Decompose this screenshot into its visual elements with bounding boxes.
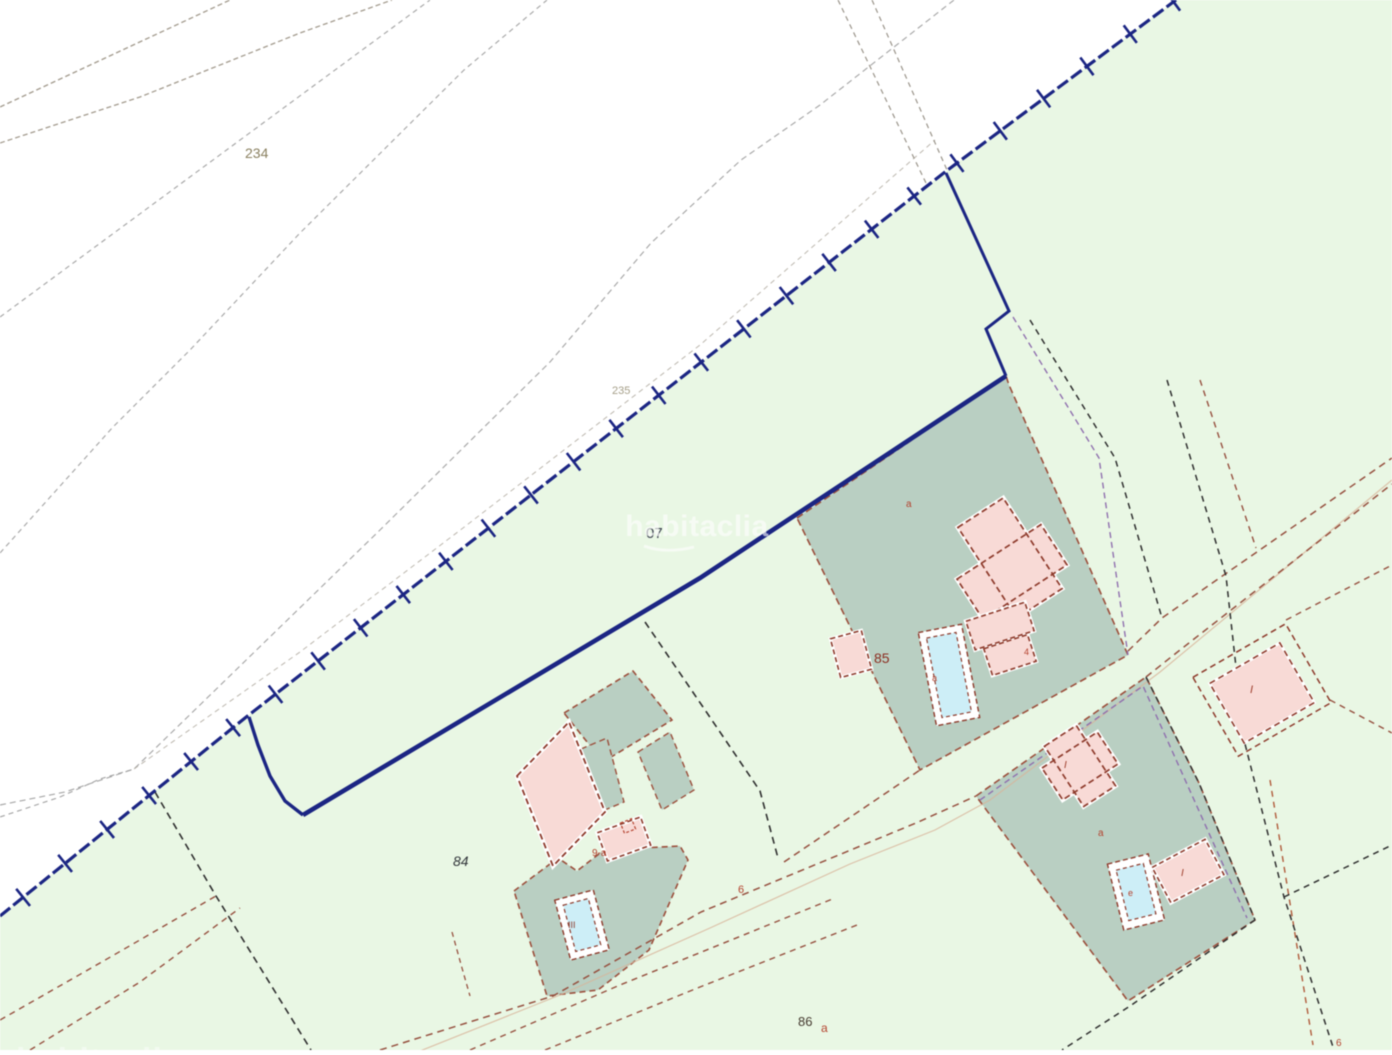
svg-text:I: I xyxy=(1064,760,1067,771)
svg-text:85: 85 xyxy=(874,650,890,666)
svg-text:a: a xyxy=(821,1021,828,1035)
svg-text:a: a xyxy=(932,673,937,683)
svg-text:a: a xyxy=(906,499,912,510)
svg-text:86: 86 xyxy=(798,1014,812,1029)
svg-text:e: e xyxy=(1128,888,1133,898)
svg-text:84: 84 xyxy=(453,853,469,869)
svg-text:6: 6 xyxy=(1336,1038,1342,1049)
svg-text:234: 234 xyxy=(245,145,269,161)
svg-text:III: III xyxy=(568,920,576,930)
svg-text:9-a: 9-a xyxy=(592,848,607,859)
svg-text:habitaclia: habitaclia xyxy=(16,1042,183,1050)
svg-text:a: a xyxy=(1098,828,1104,839)
svg-text:I: I xyxy=(1250,684,1253,696)
svg-text:235: 235 xyxy=(612,385,630,397)
svg-text:6: 6 xyxy=(738,884,744,896)
svg-text:habitaclia: habitaclia xyxy=(625,510,768,543)
svg-text:I: I xyxy=(1181,868,1184,879)
svg-text:4: 4 xyxy=(1024,647,1029,657)
